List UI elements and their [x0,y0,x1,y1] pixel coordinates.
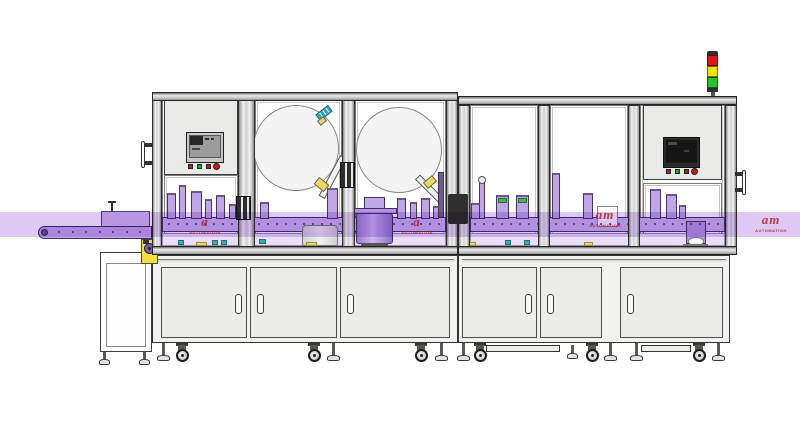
door-hinge [340,162,355,188]
cabinet-lip [462,259,726,262]
leveling-foot-pad [630,355,643,361]
leveling-foot-stem [103,351,106,359]
leveling-foot-pad [457,355,470,361]
screen-glint [211,138,214,140]
door-handle [347,294,354,314]
screen-glint [205,138,209,140]
cabinet-door [540,267,602,338]
gripper-pad [498,198,507,203]
caster-hub [479,354,482,357]
hmi-button [188,164,193,169]
machine-line-rendering: aAUTOMATIONaAUTOMATIONamAUTOMATIONamAUTO… [0,0,800,438]
door-handle [235,294,242,314]
cabinet-door [340,267,450,338]
leveling-foot-stem [717,343,720,355]
hmi-button [684,169,689,174]
leveling-foot-pad [435,355,448,361]
accent-part [212,240,218,245]
tower-segment-green [707,77,718,88]
side-door-handle [742,170,746,195]
leveling-foot-pad [327,355,340,361]
purple-highlight-band [0,212,800,237]
caster-hub [698,354,701,357]
cabinet-door [620,267,723,338]
door-handle [627,294,634,314]
gripper-pad [518,198,527,203]
leveling-foot-stem [440,343,443,355]
leveling-foot-pad [567,353,578,359]
accent-part [505,240,511,245]
accent-part [259,239,266,244]
accent-part [178,240,184,245]
accent-part [524,240,530,245]
leveling-foot-stem [609,343,612,355]
left-machine-bottom-rail [152,246,458,255]
label-reel [253,105,339,191]
hmi-button [197,164,202,169]
hmi-button-round [213,163,220,170]
leveling-foot-stem [162,343,165,355]
cabinet-door [462,267,537,338]
leveling-foot-pad [604,355,617,361]
caster-hub [591,354,594,357]
caster-hub [420,354,423,357]
station-cap [478,176,486,184]
hmi-button [206,164,211,169]
door-handle [257,294,264,314]
caster-hub [181,354,184,357]
right-machine-bottom-rail [458,246,737,255]
leveling-foot-stem [462,343,465,355]
right-machine-top-rail [458,96,737,105]
leveling-foot-pad [139,359,150,365]
leveling-foot-stem [143,351,146,359]
caster-hub [313,354,316,357]
hmi-button-round [691,168,698,175]
tower-segment-red [707,55,718,66]
leveling-foot-pad [157,355,170,361]
hmi-button [666,169,671,174]
door-handle-stub [144,161,152,165]
guide-pin [111,202,113,211]
accent-part [221,240,227,245]
leveling-foot-pad [99,359,110,365]
guide-pin-top [108,201,116,203]
leveling-foot-stem [635,343,638,355]
stand-inner-panel [106,263,146,347]
support-skid [486,345,560,352]
side-door-handle [141,141,145,168]
cabinet-lip [156,259,454,262]
cabinet-door [161,267,247,338]
cabinet-door [250,267,337,338]
drive-gear-hub [148,247,151,250]
screen-glint [668,142,677,145]
tower-segment-yellow [707,66,718,77]
support-skid [641,345,691,352]
door-handle-stub [144,143,152,147]
leveling-foot-stem [571,345,574,353]
left-machine-top-rail [152,92,458,101]
screen-glint [192,148,200,150]
screen-menu-block [190,136,203,145]
screen-glint [684,150,689,152]
door-handle [547,294,554,314]
leveling-foot-pad [712,355,725,361]
hmi-button [675,169,680,174]
door-handle [525,294,532,314]
leveling-foot-stem [332,343,335,355]
